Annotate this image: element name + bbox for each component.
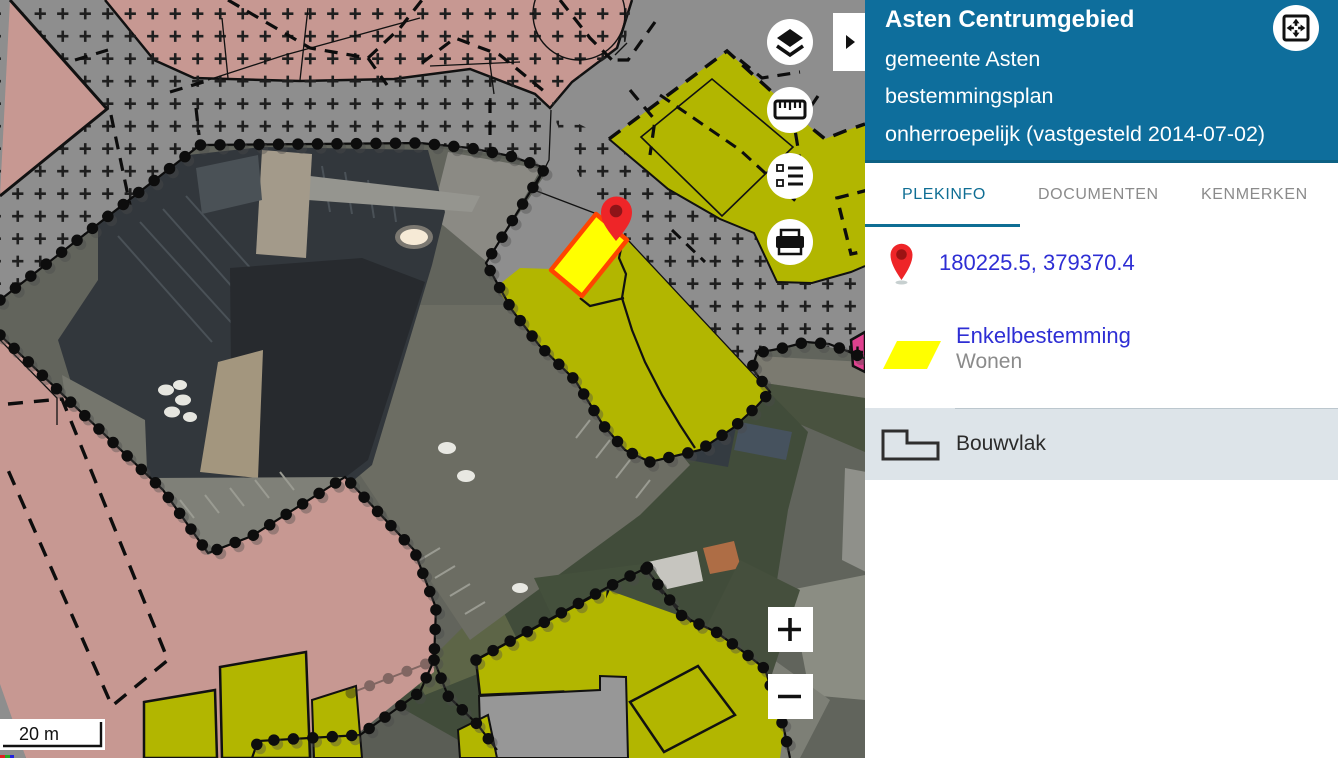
svg-text:20 m: 20 m xyxy=(19,724,59,744)
